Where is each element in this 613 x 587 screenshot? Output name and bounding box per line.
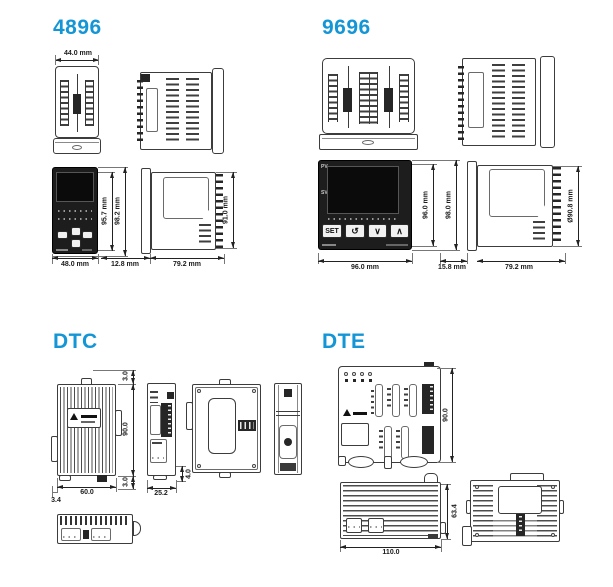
extension-line	[441, 539, 451, 540]
delta-logo-icon	[70, 413, 78, 420]
side-ear-left	[51, 436, 58, 462]
extension-line	[467, 253, 468, 264]
dim-line-90-dte	[452, 368, 453, 462]
mount-ratchet-right	[399, 74, 409, 122]
display-screen	[56, 172, 94, 202]
brand-wordmark	[81, 415, 97, 418]
comm-connector	[422, 426, 434, 454]
view-4896-side-upper	[140, 68, 224, 154]
view-9696-side-upper	[458, 56, 555, 148]
screw-icon	[475, 485, 479, 489]
dim-label-bottom-offset: 3.0	[123, 477, 130, 487]
bezel-line	[55, 142, 99, 143]
dim-line-79-2	[477, 261, 565, 262]
indicator-leds	[58, 218, 92, 220]
panel-frame-bar	[212, 68, 224, 154]
terminal-strip	[384, 426, 392, 459]
dim-line-48	[52, 258, 98, 259]
up-button: ∧	[390, 224, 409, 238]
display-screen	[327, 166, 399, 214]
dim-line-3-top	[133, 370, 134, 384]
dim-label-top-width: 44.0 mm	[64, 50, 92, 57]
set-button: SET	[322, 224, 342, 238]
dim-line-4	[182, 466, 183, 482]
extension-line	[118, 489, 136, 490]
dim-label-body-depth: 79.2 mm	[505, 264, 533, 271]
bottom-foot-round	[400, 456, 428, 468]
vent-slots	[533, 221, 545, 243]
screw-icon	[252, 389, 256, 393]
dim-label-front-h-inner: 96.0 mm	[423, 191, 430, 219]
mount-screw-head	[73, 94, 81, 114]
view-dtc-bottom	[57, 514, 141, 546]
cutout-window	[208, 398, 236, 454]
led-square	[361, 379, 364, 382]
terminal-strip	[392, 384, 400, 417]
extension-line	[553, 246, 582, 247]
terminal-strip	[61, 528, 81, 541]
view-dtc-side-terminal	[147, 383, 176, 476]
divider-line	[276, 415, 300, 416]
section-title-dtc: DTC	[53, 330, 98, 354]
dim-line-15-8	[440, 261, 467, 262]
spec-label-window	[489, 169, 545, 217]
terminal-strip	[401, 426, 409, 459]
vent-stripes	[493, 520, 537, 537]
dim-label-side-width: 25.2	[154, 490, 168, 497]
brand-subtext	[81, 421, 95, 423]
extension-line	[98, 254, 99, 264]
dim-line-96h	[318, 261, 412, 262]
dim-label-front-h-outer: 98.2 mm	[115, 197, 122, 225]
dim-line-91	[233, 172, 234, 248]
extension-line	[224, 254, 225, 264]
dim-line-98-2	[125, 167, 126, 256]
dim-label-height: 90.0	[123, 422, 130, 436]
vent-slots	[186, 78, 199, 144]
clip-block	[284, 389, 292, 397]
clip-block	[167, 392, 174, 399]
loop-button: ↺	[345, 224, 365, 238]
view-9696-top	[322, 58, 421, 150]
terminal-pins	[348, 526, 360, 528]
view-dte-top	[340, 482, 446, 540]
bottom-foot-round	[348, 456, 374, 468]
dim-label-width: 110.0	[382, 549, 399, 556]
terminal-strip	[91, 528, 111, 541]
panel-frame-bar	[540, 56, 555, 148]
bottom-tab	[338, 456, 346, 466]
mount-teeth	[553, 167, 561, 245]
view-dtc-side-plain	[192, 384, 261, 473]
connector-pins	[240, 422, 254, 429]
io-card-text-mark	[152, 442, 162, 444]
view-dte-front	[338, 366, 441, 463]
bottom-tab	[384, 456, 392, 469]
extension-line	[116, 478, 117, 492]
divider-line	[276, 411, 300, 412]
side-clip	[466, 500, 471, 514]
view-9696-front: PV SV SET ↺ ∨ ∧	[318, 160, 412, 250]
side-clip	[559, 500, 564, 514]
dim-line-25-2	[147, 488, 176, 489]
view-dtc-front	[57, 384, 116, 476]
led-dot	[360, 372, 364, 376]
side-tab	[133, 521, 141, 536]
extension-line	[98, 55, 99, 65]
dim-line-98v	[456, 160, 457, 250]
mount-screw-head	[384, 88, 393, 112]
brand-wordmark	[353, 412, 367, 415]
extension-line	[412, 246, 437, 247]
delta-logo-icon	[343, 409, 351, 416]
view-4896-side-lower	[141, 168, 225, 254]
dim-label-side-height: Ø90.8 mm	[568, 189, 575, 222]
extension-line	[437, 462, 456, 463]
down-button: ∨	[368, 224, 387, 238]
screw-icon	[197, 389, 201, 393]
model-text-mark	[82, 249, 92, 251]
dim-line-60	[57, 487, 116, 488]
indicator-leds	[58, 210, 92, 212]
dim-label-front-width: 48.0 mm	[61, 261, 89, 268]
vent-slots	[166, 78, 179, 144]
screw-icon	[551, 533, 555, 537]
model-text-mark	[386, 244, 408, 246]
section-title-dte: DTE	[322, 330, 366, 354]
dim-line-90-8	[578, 166, 579, 246]
dim-line-110	[340, 547, 441, 548]
cutout-window	[498, 486, 542, 514]
section-title-9696: 9696	[322, 16, 371, 40]
side-ear-right	[115, 410, 122, 436]
side-ear	[186, 402, 193, 430]
dim-label-front-h-outer: 98.0 mm	[446, 191, 453, 219]
dim-label-top-offset: 3.0	[123, 371, 130, 381]
bezel-line	[322, 138, 415, 139]
dimension-drawing-page: 4896 44.0 mm 95.7	[0, 0, 613, 587]
dip-switch-column	[371, 390, 374, 416]
extension-line	[52, 492, 58, 493]
din-clip-hole	[284, 438, 292, 446]
led-square	[353, 379, 356, 382]
spec-label-window	[163, 177, 209, 219]
connector-pins	[519, 516, 522, 534]
screw-icon	[197, 464, 201, 468]
screw-icon	[252, 464, 256, 468]
dim-line-90	[133, 384, 134, 476]
mode-button	[82, 231, 93, 239]
extension-line	[52, 256, 128, 257]
terminal-pins	[63, 536, 79, 538]
view-dtc-rear	[274, 383, 302, 475]
dim-line-96v	[433, 164, 434, 246]
dim-line-63-4	[447, 484, 448, 539]
terminal-socket	[150, 405, 161, 435]
dim-label-bezel-depth: 15.8 mm	[438, 264, 466, 271]
dim-label-depth: 63.4	[452, 504, 459, 518]
inner-line	[297, 385, 298, 473]
din-clip-foot	[280, 463, 296, 471]
screw-icon	[551, 485, 555, 489]
vent-comb	[60, 516, 130, 525]
dim-line-95-7	[112, 172, 113, 251]
dim-label-front-h-inner: 95.7 mm	[102, 197, 109, 225]
extension-line	[412, 253, 413, 264]
view-4896-front	[52, 167, 98, 254]
dim-label-height: 90.0	[443, 408, 450, 422]
dim-line-79-2	[150, 258, 224, 259]
extension-line	[412, 250, 460, 251]
corner-block	[141, 74, 150, 82]
dim-line-3-bottom	[133, 476, 134, 489]
delta-logo-icon	[322, 244, 336, 246]
up-button	[71, 227, 81, 236]
led-square	[369, 379, 372, 382]
mount-ratchet-right	[85, 80, 94, 126]
vent-stripes	[473, 485, 493, 537]
led-square	[345, 379, 348, 382]
dim-line-44	[55, 60, 99, 61]
vent-slots	[199, 224, 211, 246]
led-dot	[352, 372, 356, 376]
terminal-strip	[375, 384, 383, 417]
bottom-clip	[219, 472, 231, 478]
indicator-leds	[328, 218, 398, 220]
view-9696-side-lower	[467, 161, 563, 251]
terminal-pins	[93, 536, 109, 538]
view-dte-side	[470, 480, 564, 546]
delta-logo-icon	[56, 249, 68, 251]
connector-block	[83, 530, 89, 539]
terminal-ovals	[404, 388, 408, 410]
view-4896-top	[55, 66, 103, 156]
terminal-teeth	[458, 66, 464, 140]
vent-slots	[492, 64, 505, 140]
front-bezel-bar	[467, 161, 477, 251]
vent-dashes	[150, 391, 158, 403]
set-button	[57, 231, 68, 239]
io-card-pins	[152, 457, 164, 459]
heatsink-ribs	[60, 387, 113, 473]
led-dot	[368, 372, 372, 376]
extension-line	[216, 248, 237, 249]
terminal-teeth	[137, 80, 143, 142]
terminal-ovals	[387, 388, 391, 410]
section-title-4896: 4896	[53, 16, 102, 40]
bezel-latch-slot	[72, 145, 82, 150]
label-window	[468, 72, 484, 128]
bottom-clip	[97, 475, 107, 482]
mount-ratchet-left	[60, 80, 69, 126]
label-window	[146, 88, 158, 132]
terminal-ovals	[379, 430, 383, 452]
bottom-clip	[428, 534, 438, 539]
vent-slots	[512, 64, 525, 140]
led-dot	[344, 372, 348, 376]
comm-pins	[430, 386, 433, 412]
label-plate	[341, 423, 369, 446]
mount-screw-head	[343, 88, 352, 112]
center-ratchet-line	[369, 72, 370, 124]
extension-line	[55, 55, 56, 65]
screw-icon	[475, 533, 479, 537]
mount-ratchet-left	[328, 74, 338, 122]
din-rail-clip	[462, 526, 472, 546]
extension-line	[565, 253, 566, 264]
bottom-foot	[59, 475, 71, 481]
front-bezel-bar	[141, 168, 151, 254]
dim-label-side-height: 91.0 mm	[223, 196, 230, 224]
extension-line	[441, 540, 442, 552]
dim-label-bezel-depth: 12.8 mm	[111, 261, 139, 268]
dim-label-foot-offset: 3.4	[51, 497, 61, 504]
dim-label-body-depth: 79.2 mm	[173, 261, 201, 268]
dim-label-width: 60.0	[80, 489, 94, 496]
down-button	[71, 239, 81, 248]
bottom-foot	[153, 475, 167, 480]
terminal-pins	[168, 405, 171, 435]
terminal-strip	[409, 384, 417, 417]
terminal-pins	[370, 526, 382, 528]
dim-line-12-8	[101, 258, 150, 259]
terminal-ovals	[396, 430, 400, 452]
bezel-latch-slot	[362, 140, 374, 145]
dim-label-front-width: 96.0 mm	[351, 264, 379, 271]
